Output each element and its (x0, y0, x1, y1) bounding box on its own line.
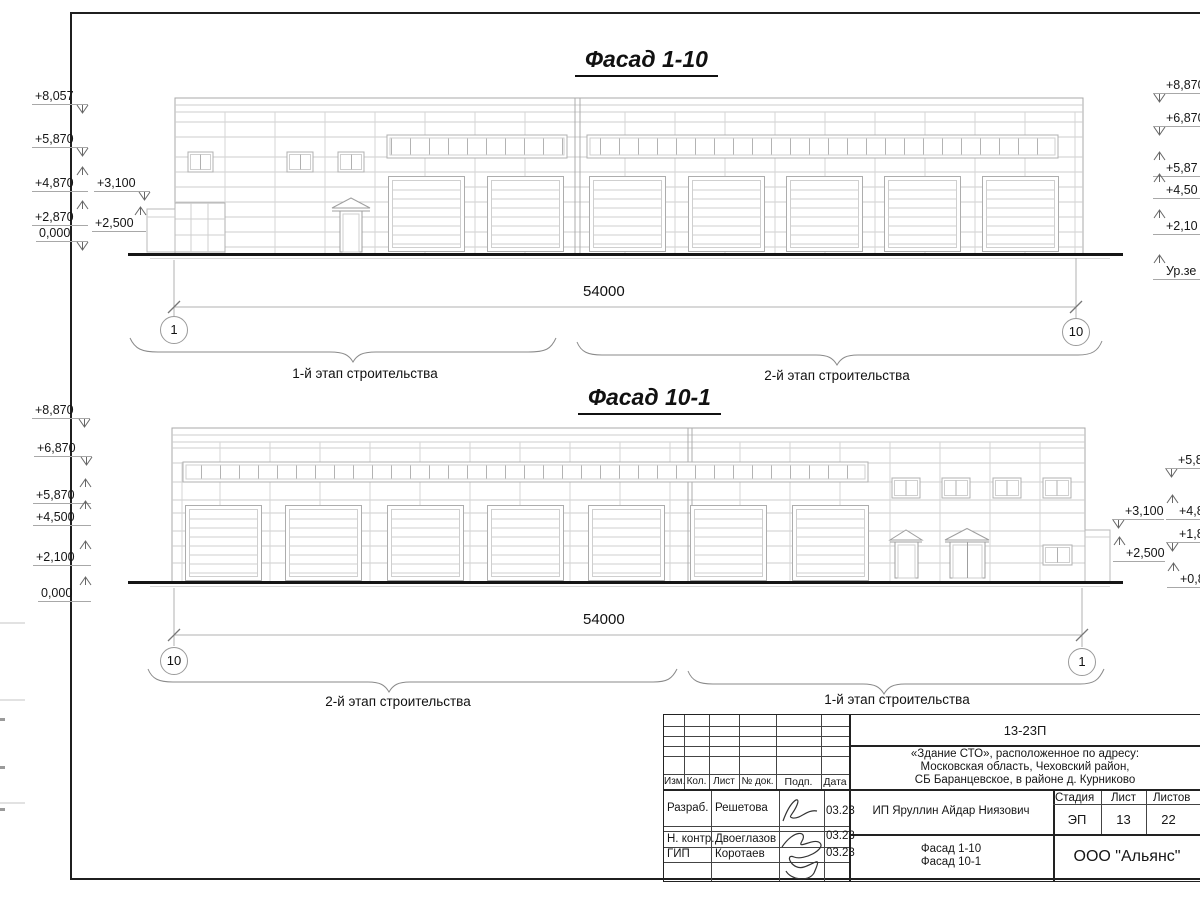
sheets-value: 22 (1146, 812, 1191, 827)
elevation-symbol-icon (1166, 542, 1179, 552)
project-line-2: Московская область, Чеховский район, (859, 761, 1191, 773)
facade-1-10-drawing (125, 85, 1140, 270)
facade1-windows (188, 152, 364, 172)
elevation-mark: +3,100 (1112, 504, 1164, 520)
elevation-mark: +2,870 (32, 210, 88, 226)
elevation-value: +6,870 (1166, 112, 1200, 125)
project-line-3: СБ Баранцевское, в районе д. Курниково (859, 774, 1191, 786)
elevation-value: +5,87 (1166, 162, 1198, 175)
elevation-value: +3,100 (1125, 505, 1164, 518)
facade2-title: Фасад 10-1 (578, 384, 721, 415)
elevation-symbol-icon (78, 418, 91, 428)
role-gip: ГИП (667, 848, 690, 860)
elevation-value: +8,870 (1166, 79, 1200, 92)
elevation-mark: +5,870 (32, 132, 88, 148)
project-line-1: «Здание СТО», расположенное по адресу: (859, 748, 1191, 760)
elevation-mark: +8,870 (32, 403, 90, 419)
elevation-symbol-icon (76, 147, 89, 157)
elevation-value: +2,500 (95, 217, 134, 230)
elevation-value: 0,000 (39, 227, 70, 240)
elevation-mark: +4,50 (1153, 183, 1200, 199)
stage-label: 1-й этап строительства (792, 692, 1002, 707)
sheet-frame-top (70, 12, 1200, 14)
elevation-symbol-icon (76, 166, 89, 176)
sheets-header: Листов (1153, 792, 1190, 804)
elevation-value: +5,870 (35, 133, 74, 146)
elevation-mark: 0,000 (38, 586, 91, 602)
elevation-symbol-icon (79, 500, 92, 510)
elevation-symbol-icon (1153, 151, 1166, 161)
axis-bubble-1b: 1 (1068, 648, 1096, 676)
role-nkontr: Н. контр. (667, 833, 714, 845)
elevation-value: +0,8 (1180, 573, 1200, 586)
facade1-title: Фасад 1-10 (575, 46, 718, 77)
elevation-mark: +2,500 (1113, 546, 1165, 562)
elevation-value: +5,870 (36, 489, 75, 502)
elevation-symbol-icon (1167, 562, 1180, 572)
elevation-mark: +6,870 (1153, 111, 1200, 127)
drawing-title-2: Фасад 10-1 (849, 856, 1053, 868)
elevation-mark: +8,057 (32, 89, 88, 105)
elevation-mark: +3,100 (94, 176, 150, 192)
elevation-symbol-icon (79, 576, 92, 586)
name-korotaev: Коротаев (715, 848, 765, 860)
elevation-mark: Ур.зе (1153, 264, 1200, 280)
elevation-mark: +2,100 (33, 550, 91, 566)
facade-10-1-drawing (125, 415, 1140, 590)
stage-label: 2-й этап строительства (293, 694, 503, 709)
name-reshetova: Решетова (715, 802, 768, 814)
col-doc: № док. (739, 776, 776, 787)
elevation-mark: +2,10 (1153, 219, 1200, 235)
elevation-value: +5,8 (1178, 454, 1200, 467)
stage-header: Стадия (1055, 792, 1094, 804)
elevation-symbol-icon (1153, 209, 1166, 219)
elevation-value: +4,8 (1179, 505, 1200, 518)
facade2-dimension: 54000 (583, 611, 625, 628)
elevation-value: +4,500 (36, 511, 75, 524)
drawing-title-1: Фасад 1-10 (849, 843, 1053, 855)
elevation-mark: +4,870 (32, 176, 88, 192)
elevation-symbol-icon (1153, 126, 1166, 136)
elevation-value: Ур.зе (1166, 265, 1196, 278)
col-data: Дата (821, 776, 849, 788)
elevation-value: 0,000 (41, 587, 72, 600)
elevation-symbol-icon (1112, 519, 1125, 529)
elevation-mark: +5,8 (1165, 453, 1200, 469)
col-list: Лист (709, 776, 739, 787)
elevation-symbol-icon (1153, 93, 1166, 103)
elevation-value: +2,500 (1126, 547, 1165, 560)
axis-bubble-1: 1 (160, 316, 188, 344)
company-name: ООО "Альянс" (1053, 848, 1200, 866)
date-2: 03.23 (826, 830, 855, 842)
drawing-sheet: Фасад 1-10 Фасад 10-1 (0, 0, 1200, 900)
sheet-value: 13 (1101, 812, 1146, 827)
client-name: ИП Яруллин Айдар Ниязович (851, 805, 1051, 817)
elevation-symbol-icon (79, 540, 92, 550)
name-dvoeglazov: Двоеглазов (715, 833, 776, 845)
col-izm: Изм. (664, 776, 684, 787)
title-block: Изм. Кол. Лист № док. Подп. Дата Разраб.… (663, 714, 1200, 882)
elevation-symbol-icon (134, 206, 147, 216)
elevation-mark: +4,8 (1166, 504, 1200, 520)
elevation-symbol-icon (76, 241, 89, 251)
axis-bubble-10: 10 (1062, 318, 1090, 346)
elevation-mark: +0,8 (1167, 572, 1200, 588)
stage-label: 2-й этап строительства (732, 368, 942, 383)
elevation-value: +2,10 (1166, 220, 1198, 233)
elevation-symbol-icon (76, 200, 89, 210)
facade1-dimension: 54000 (583, 283, 625, 300)
col-podp: Подп. (776, 776, 821, 788)
elevation-mark: +1,8 (1166, 527, 1200, 543)
elevation-value: +2,100 (36, 551, 75, 564)
elevation-value: +6,870 (37, 442, 76, 455)
elevation-symbol-icon (138, 191, 151, 201)
elevation-mark: 0,000 (36, 226, 88, 242)
elevation-value: +3,100 (97, 177, 136, 190)
doc-number: 13-23П (849, 723, 1200, 738)
elevation-value: +1,8 (1179, 528, 1200, 541)
elevation-mark: +2,500 (92, 216, 146, 232)
elevation-symbol-icon (76, 104, 89, 114)
signature-icon (777, 791, 823, 827)
elevation-value: +2,870 (35, 211, 74, 224)
elevation-symbol-icon (1153, 173, 1166, 183)
stage-value: ЭП (1053, 812, 1101, 827)
elevation-symbol-icon (1166, 494, 1179, 504)
elevation-symbol-icon (80, 456, 93, 466)
elevation-symbol-icon (1153, 254, 1166, 264)
elevation-symbol-icon (1165, 468, 1178, 478)
elevation-value: +8,057 (35, 90, 74, 103)
facade2-windows (892, 478, 1072, 565)
elevation-symbol-icon (1113, 536, 1126, 546)
elevation-value: +8,870 (35, 404, 74, 417)
elevation-symbol-icon (79, 478, 92, 488)
signature-icon (774, 827, 828, 881)
elevation-value: +4,50 (1166, 184, 1198, 197)
role-razrab: Разраб. (667, 802, 708, 814)
axis-bubble-10b: 10 (160, 647, 188, 675)
sheet-header: Лист (1101, 792, 1146, 804)
elevation-mark: +8,870 (1153, 78, 1200, 94)
stage-label: 1-й этап строительства (260, 366, 470, 381)
elevation-value: +4,870 (35, 177, 74, 190)
elevation-mark: +6,870 (34, 441, 92, 457)
col-kol: Кол. (684, 776, 709, 787)
elevation-mark: +4,500 (33, 510, 91, 526)
